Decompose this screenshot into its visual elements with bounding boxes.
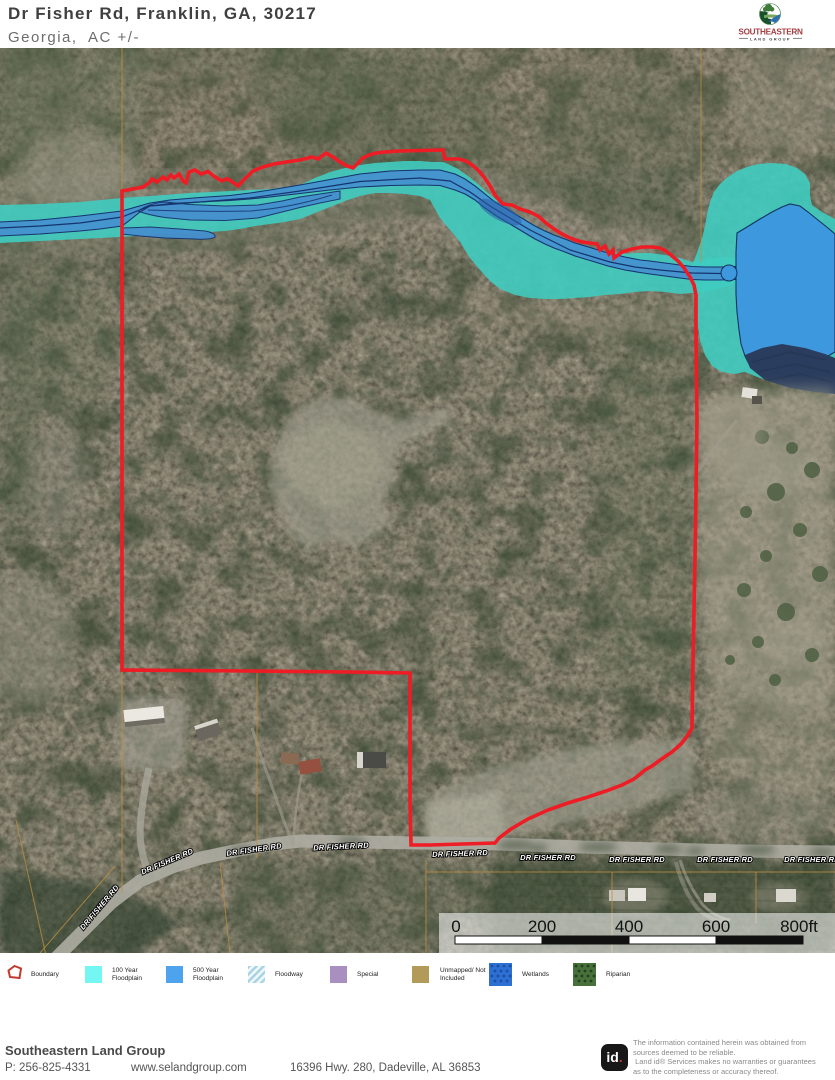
svg-text:DR FISHER RD: DR FISHER RD (784, 855, 835, 864)
svg-text:DR FISHER RD: DR FISHER RD (609, 855, 665, 864)
svg-text:800ft: 800ft (780, 917, 818, 936)
svg-text:DR FISHER RD: DR FISHER RD (697, 855, 753, 864)
svg-text:600: 600 (702, 917, 730, 936)
svg-text:200: 200 (528, 917, 556, 936)
svg-text:400: 400 (615, 917, 643, 936)
svg-text:0: 0 (451, 917, 460, 936)
svg-text:DR FISHER RD: DR FISHER RD (520, 853, 576, 862)
svg-text:LAND GROUP: LAND GROUP (750, 37, 791, 42)
svg-text:SOUTHEASTERN: SOUTHEASTERN (738, 28, 803, 37)
